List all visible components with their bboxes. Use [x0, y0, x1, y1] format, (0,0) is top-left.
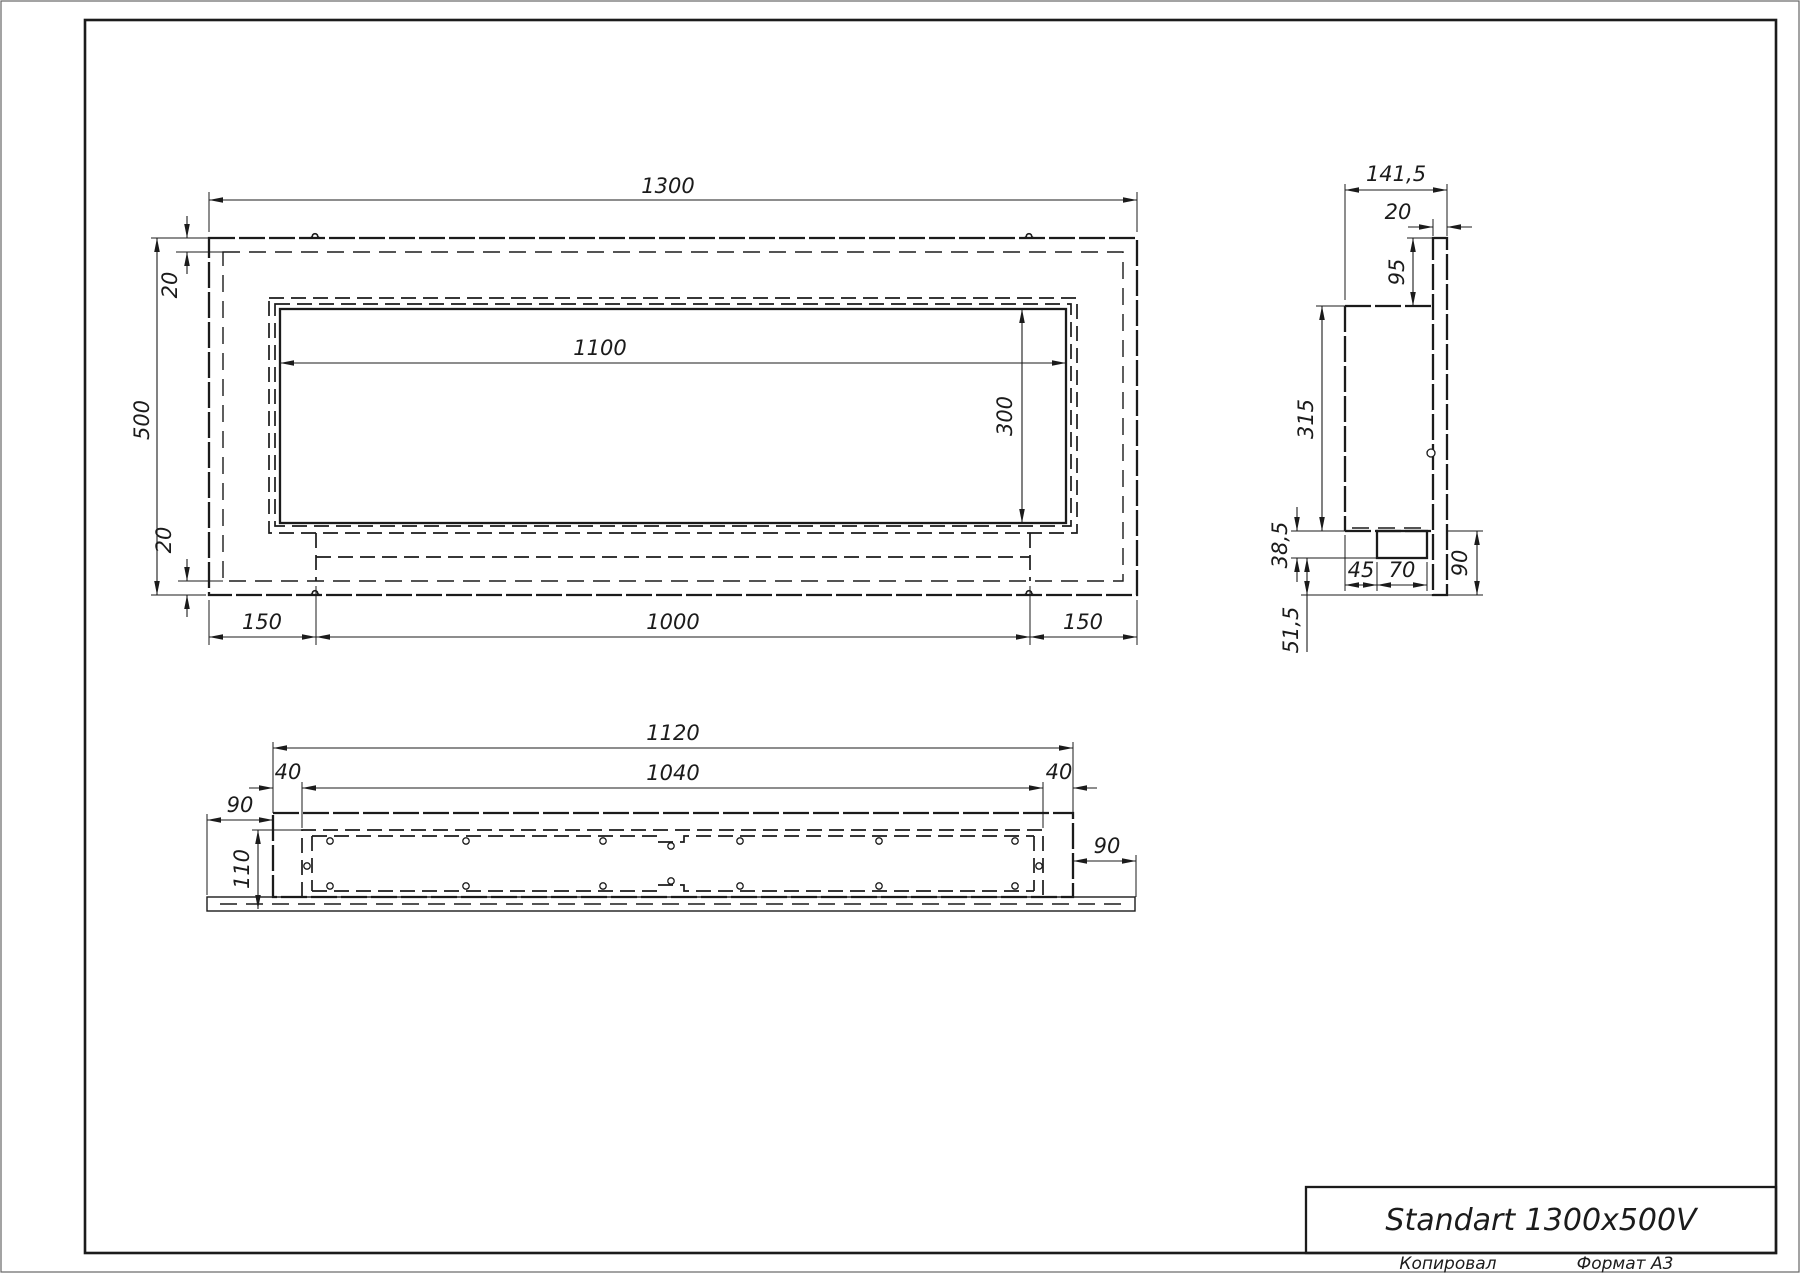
dim-plan-end-left: 40 [275, 760, 302, 784]
dim-front-height: 500 [130, 400, 154, 440]
dim-side-block-drop: 38,5 [1268, 522, 1292, 569]
dim-front-bottom-inset: 20 [152, 527, 176, 554]
dim-side-flange-below: 90 [1448, 550, 1472, 577]
dim-front-opening-width: 1100 [573, 336, 626, 360]
side-extension-lines [1291, 184, 1483, 595]
front-keyhole-slots [310, 234, 1035, 595]
side-view: 141,5 20 95 315 38,5 51,5 45 70 90 [1268, 162, 1483, 653]
side-flange [1433, 238, 1447, 595]
technical-drawing: 1300 500 20 20 1100 300 150 1000 150 [0, 0, 1800, 1273]
dim-side-bottom-offset: 51,5 [1279, 607, 1303, 654]
dim-plan-overhang-left: 90 [227, 793, 254, 817]
dim-side-depth: 141,5 [1366, 162, 1426, 186]
format-label: Формат А3 [1577, 1254, 1674, 1273]
dim-front-left-margin: 150 [242, 610, 282, 634]
side-burner-block [1377, 531, 1427, 558]
dim-plan-end-right: 40 [1046, 760, 1073, 784]
copied-label: Копировал [1399, 1254, 1496, 1273]
plan-holes [304, 838, 1042, 889]
dim-side-block-inset: 45 [1348, 558, 1375, 582]
dim-front-width: 1300 [641, 174, 694, 198]
front-tray-hidden-lines [316, 533, 1030, 581]
drawing-sheet: 1300 500 20 20 1100 300 150 1000 150 [0, 0, 1800, 1273]
front-dimension-lines [157, 200, 1137, 637]
dim-side-flange-thickness: 20 [1385, 200, 1412, 224]
front-inset-hidden-line [223, 252, 1123, 581]
front-opening-hidden-1 [275, 304, 1071, 526]
front-opening [280, 309, 1066, 523]
dim-side-block-width: 70 [1389, 558, 1416, 582]
side-body [1345, 306, 1433, 531]
front-opening-hidden-2 [269, 298, 1077, 533]
dim-side-top-offset: 95 [1385, 259, 1409, 286]
drawing-title: Standart 1300x500V [1385, 1203, 1699, 1238]
dim-front-right-margin: 150 [1063, 610, 1103, 634]
front-view: 1300 500 20 20 1100 300 150 1000 150 [130, 174, 1137, 645]
dim-front-top-inset: 20 [158, 272, 182, 299]
dim-plan-body-width: 1120 [646, 721, 699, 745]
front-extension-lines [151, 192, 1137, 645]
title-block: Standart 1300x500V Копировал Формат А3 [1306, 1187, 1776, 1273]
plan-inner-frame-1 [302, 830, 1043, 897]
plan-view: 1120 1040 40 40 90 90 110 [207, 721, 1136, 911]
dim-front-opening-height: 300 [993, 396, 1017, 436]
side-flange-hole [1427, 449, 1435, 457]
dim-plan-inner-width: 1040 [646, 761, 699, 785]
dim-front-tray-width: 1000 [646, 610, 699, 634]
dim-side-body-height: 315 [1294, 399, 1318, 439]
dim-plan-overhang-right: 90 [1094, 834, 1121, 858]
dim-plan-depth: 110 [230, 849, 254, 889]
